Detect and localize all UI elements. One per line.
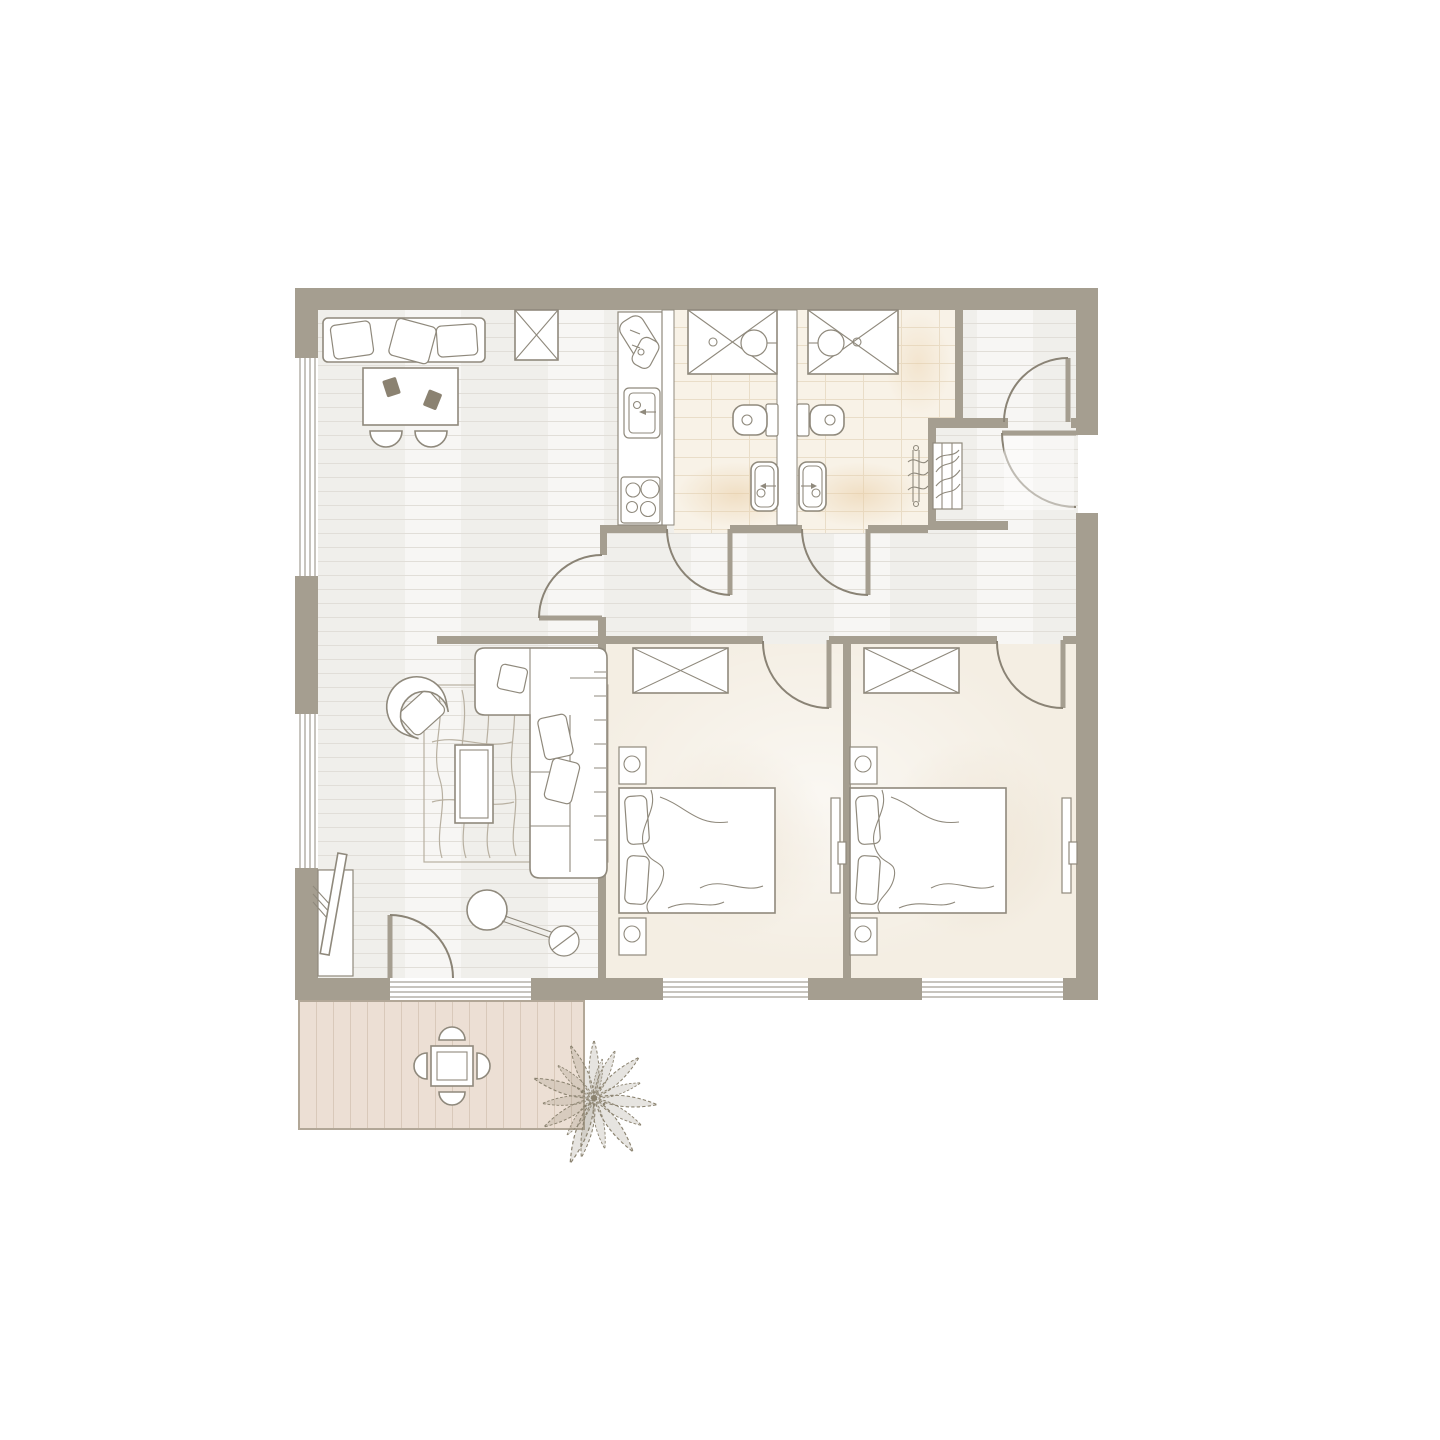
bedroom-1-door [763,640,829,708]
terrace-glass-door [390,978,531,1000]
storage-room-door [1004,358,1068,422]
wall-outer-bottom-1 [295,978,390,1000]
wall-bath-south-2 [730,525,802,533]
corner-sofa [475,648,607,878]
outdoor-chair-top [439,1027,465,1040]
wall-corridor-bed-2 [829,636,850,644]
wall-outer-right-2 [1076,513,1098,1000]
washbasin-2 [799,462,826,511]
armchair [374,664,455,745]
plan-overlay [0,0,1440,1440]
plumbing-wall-kitchen [662,310,674,525]
wall-outer-left-2 [295,576,318,714]
wall-outer-right-1 [1076,288,1098,435]
wall-outer-top [295,288,1098,310]
terrace [414,1027,490,1105]
left-window-2 [295,714,318,868]
floor-plan-canvas [0,0,1440,1440]
towel-radiator [908,446,928,507]
outdoor-chair-bottom [439,1092,465,1105]
wall-corridor-living [437,636,603,644]
wall-outer-bottom-2 [531,978,663,1000]
wall-outer-bottom-3 [808,978,922,1000]
towel-closet [933,443,962,509]
bathroom-1-door [667,529,730,595]
nightstand-1a [619,747,646,784]
wall-outer-left-1 [295,288,318,358]
wardrobe-2 [864,648,959,693]
plumbing-wall-bath-divider [777,310,797,525]
wall-shelf-desk-2 [1062,798,1077,893]
bathroom-2 [797,310,928,511]
outdoor-chair-left [414,1053,427,1079]
double-bed-1 [619,788,775,913]
toilet-2 [797,404,844,436]
kitchen-sink [624,388,660,438]
nightstand-2a [850,747,877,784]
bedroom-2-door [997,640,1063,708]
wall-hall-south [928,521,1008,530]
double-bed-2 [850,788,1006,913]
sofa-pillow-1 [497,664,529,694]
living-corridor-door [539,555,602,618]
bench-pillow-3 [436,324,478,358]
tv-sideboard [313,853,353,976]
washbasin-1 [751,462,778,511]
living-room [313,648,608,976]
shower-1 [688,310,777,374]
bathroom-2-door [802,529,868,595]
wall-corridor-bed-1 [606,636,763,644]
bedroom-1 [619,648,846,955]
outdoor-chair-right [477,1053,490,1079]
bench-pillow-1 [330,320,374,359]
kitchen [616,312,662,525]
wall-storage-bottom-stub [1071,418,1076,428]
door-mat [1004,436,1074,510]
wall-storage-bottom [928,418,1008,428]
tall-cabinet [515,310,558,360]
nightstand-2b [850,918,877,955]
dining-chair-1 [370,431,402,447]
bottom-window-bedroom-2 [922,978,1063,1000]
shower-head-icon [818,330,844,356]
outdoor-table [431,1046,473,1086]
wall-corridor-bed-3 [850,636,997,644]
floor-lamp [467,890,579,956]
bedroom-2 [850,648,1077,955]
dining-area [323,310,558,447]
shower-head-icon [741,330,767,356]
dining-chair-2 [415,431,447,447]
nightstand-1b [619,918,646,955]
wall-bath2-right-upper [955,310,963,422]
bathroom-1 [688,310,778,511]
terrace-door [390,915,453,978]
wall-bath-south-3 [868,525,928,533]
cooktop [621,477,660,523]
bottom-window-bedroom-1 [663,978,808,1000]
wall-outer-bottom-4 [1063,978,1098,1000]
shower-2 [808,310,898,374]
coffee-table [455,745,493,823]
plant [532,1040,658,1165]
toilet-1 [733,404,778,436]
wall-bath-south-1 [600,525,667,533]
wardrobe-1 [633,648,728,693]
left-window-1 [295,358,318,576]
dining-table [363,368,458,425]
